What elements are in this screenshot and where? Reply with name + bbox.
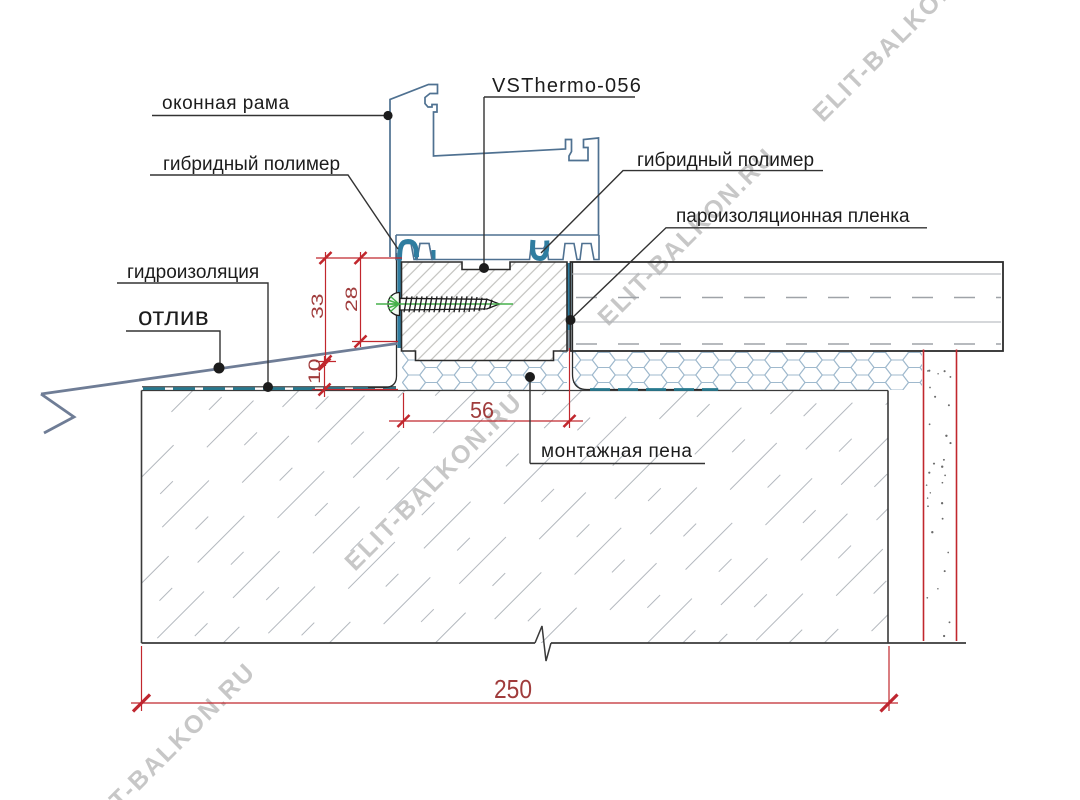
svg-text:монтажная пена: монтажная пена — [541, 441, 692, 462]
svg-text:VSThermo-056: VSThermo-056 — [492, 75, 642, 97]
svg-text:10: 10 — [306, 358, 324, 384]
svg-text:гибридный полимер: гибридный полимер — [637, 150, 814, 171]
svg-text:56: 56 — [470, 397, 494, 423]
svg-text:пароизоляционная пленка: пароизоляционная пленка — [676, 206, 910, 227]
svg-text:33: 33 — [309, 293, 327, 319]
svg-text:гидроизоляция: гидроизоляция — [127, 262, 259, 283]
svg-text:отлив: отлив — [138, 301, 209, 331]
svg-text:оконная рама: оконная рама — [162, 93, 290, 114]
svg-text:250: 250 — [494, 674, 532, 704]
svg-text:гибридный полимер: гибридный полимер — [163, 154, 340, 175]
svg-text:28: 28 — [343, 286, 361, 312]
